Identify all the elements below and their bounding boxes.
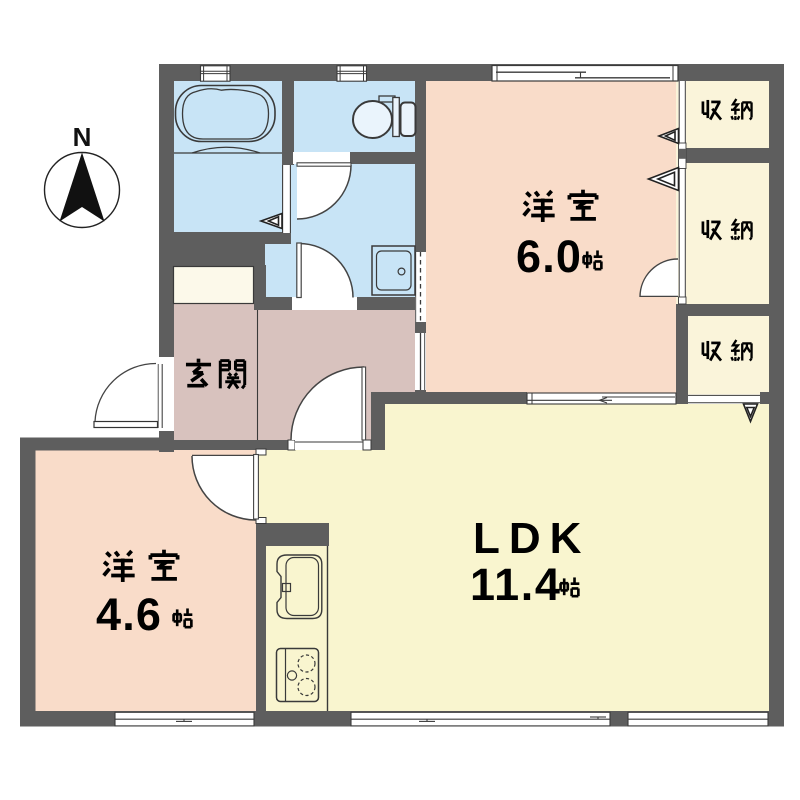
svg-text:4.6: 4.6 xyxy=(96,589,162,640)
svg-text:LDK: LDK xyxy=(473,514,590,563)
svg-text:N: N xyxy=(73,122,92,152)
svg-text:6.0: 6.0 xyxy=(516,231,582,282)
svg-text:11.4: 11.4 xyxy=(470,559,562,610)
